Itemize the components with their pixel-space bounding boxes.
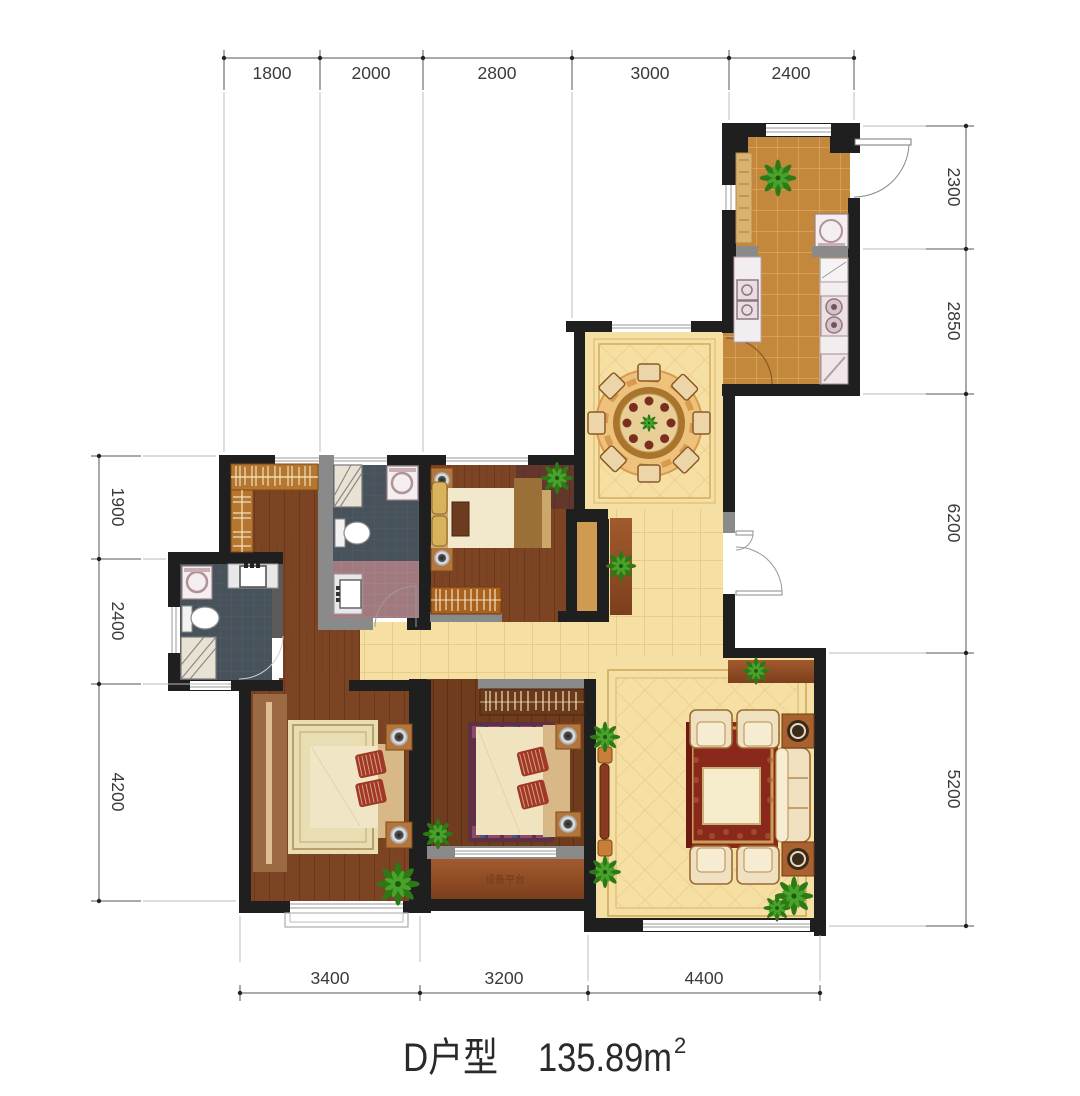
svg-text:5200: 5200 — [944, 770, 964, 809]
svg-text:3400: 3400 — [311, 968, 350, 988]
svg-text:135.89m: 135.89m — [538, 1036, 672, 1080]
svg-text:3200: 3200 — [485, 968, 524, 988]
svg-text:2400: 2400 — [772, 63, 811, 83]
svg-text:D户型: D户型 — [403, 1036, 498, 1080]
svg-text:2850: 2850 — [944, 302, 964, 341]
svg-text:1800: 1800 — [253, 63, 292, 83]
svg-text:6200: 6200 — [944, 504, 964, 543]
svg-text:2: 2 — [674, 1033, 686, 1058]
svg-text:设备平台: 设备平台 — [485, 873, 525, 886]
svg-text:3000: 3000 — [631, 63, 670, 83]
svg-text:1900: 1900 — [108, 488, 128, 527]
svg-text:2000: 2000 — [352, 63, 391, 83]
svg-text:2400: 2400 — [108, 602, 128, 641]
svg-text:4400: 4400 — [685, 968, 724, 988]
svg-text:4200: 4200 — [108, 773, 128, 812]
svg-text:2800: 2800 — [478, 63, 517, 83]
svg-text:2300: 2300 — [944, 168, 964, 207]
